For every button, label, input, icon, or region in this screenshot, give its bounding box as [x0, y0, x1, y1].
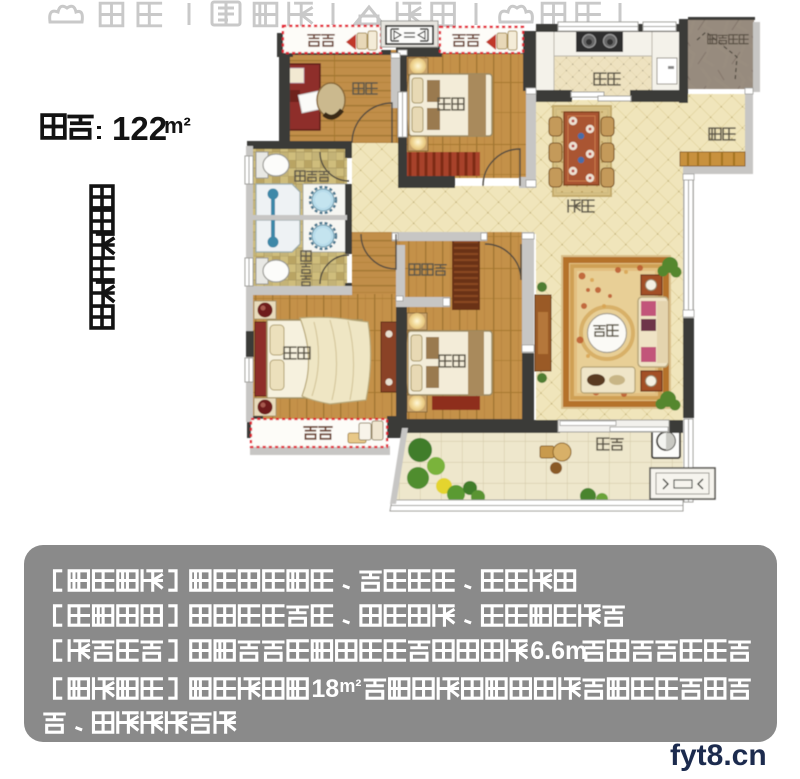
svg-text:18: 18: [311, 675, 339, 703]
svg-text:m²: m²: [339, 676, 361, 696]
svg-text:fyt8.cn: fyt8.cn: [670, 739, 767, 772]
svg-text:122: 122: [112, 110, 167, 147]
svg-text:6.6m: 6.6m: [530, 637, 587, 665]
svg-text:m²: m²: [164, 113, 191, 138]
